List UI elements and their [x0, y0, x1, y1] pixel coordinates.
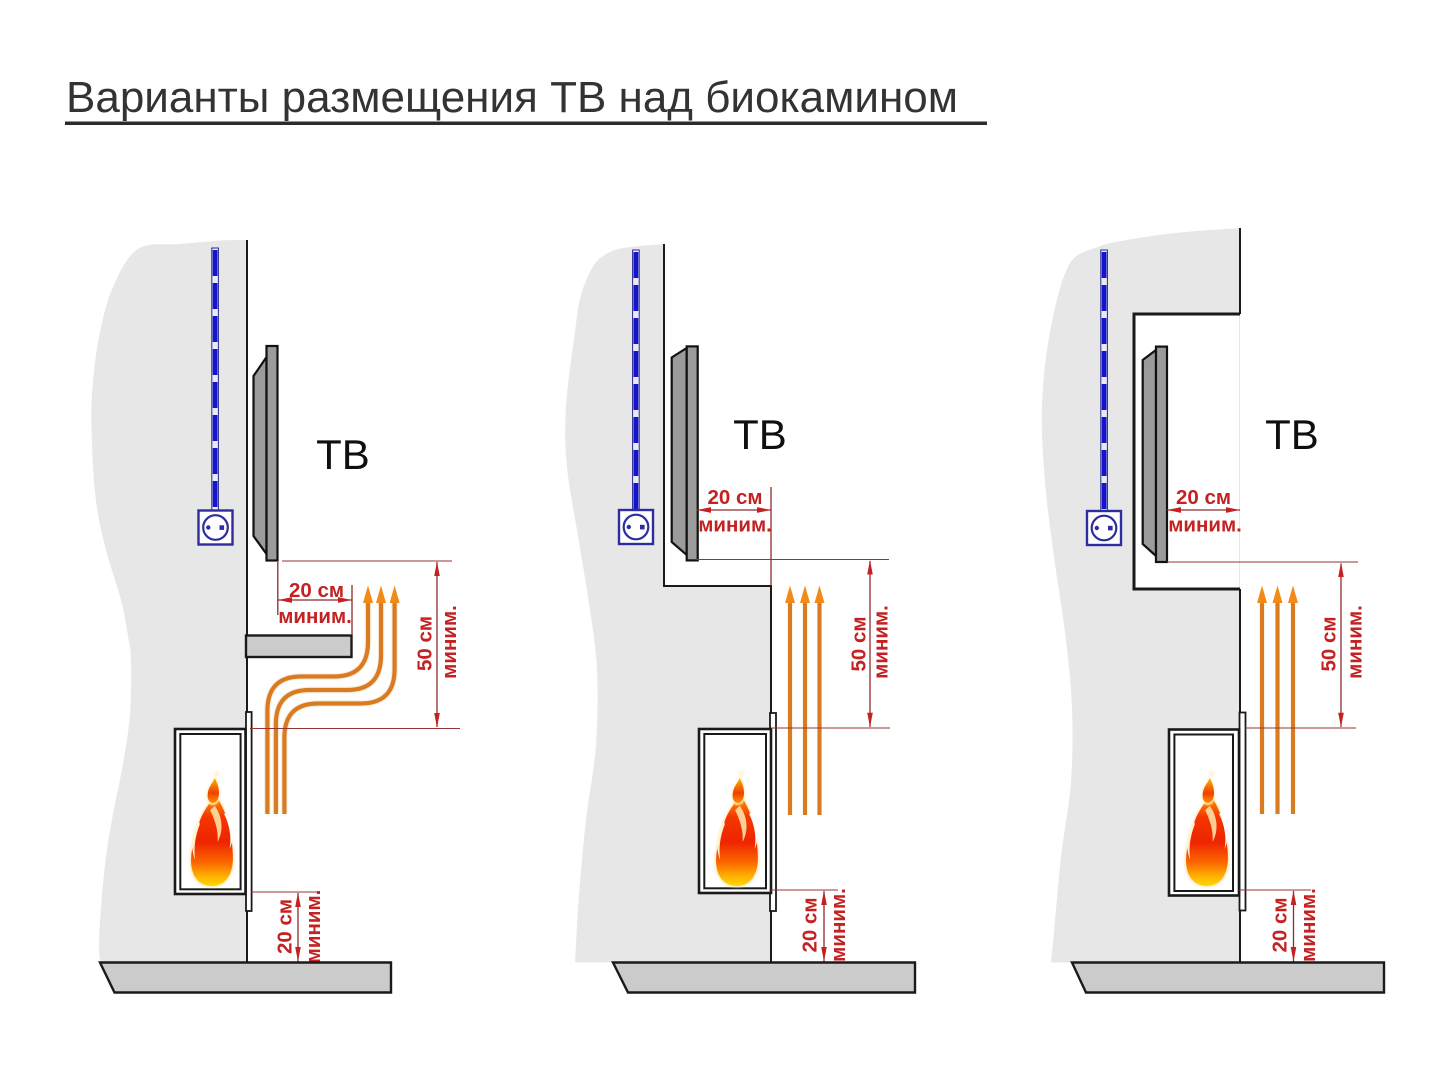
svg-text:50 см: 50 см [1318, 616, 1341, 671]
svg-text:Варианты размещения ТВ над био: Варианты размещения ТВ над биокамином [66, 73, 958, 122]
svg-text:20 см: 20 см [1269, 897, 1292, 952]
svg-text:20 см: 20 см [799, 897, 822, 952]
svg-text:миним.: миним. [698, 514, 772, 537]
svg-text:миним.: миним. [1344, 605, 1367, 679]
svg-text:миним.: миним. [302, 890, 325, 964]
svg-text:миним.: миним. [1168, 514, 1242, 537]
svg-text:20 см: 20 см [274, 899, 297, 954]
svg-text:20 см: 20 см [289, 579, 344, 602]
svg-text:50 см: 50 см [848, 616, 871, 671]
svg-text:миним.: миним. [438, 605, 461, 679]
svg-text:миним.: миним. [1297, 888, 1320, 962]
svg-text:ТВ: ТВ [1265, 411, 1319, 458]
svg-text:миним.: миним. [278, 605, 352, 628]
svg-text:20 см: 20 см [1176, 486, 1231, 509]
svg-text:ТВ: ТВ [316, 431, 370, 478]
svg-text:миним.: миним. [827, 888, 850, 962]
svg-text:50 см: 50 см [414, 616, 437, 671]
svg-text:20 см: 20 см [707, 486, 762, 509]
svg-text:ТВ: ТВ [733, 411, 787, 458]
svg-text:миним.: миним. [870, 605, 893, 679]
